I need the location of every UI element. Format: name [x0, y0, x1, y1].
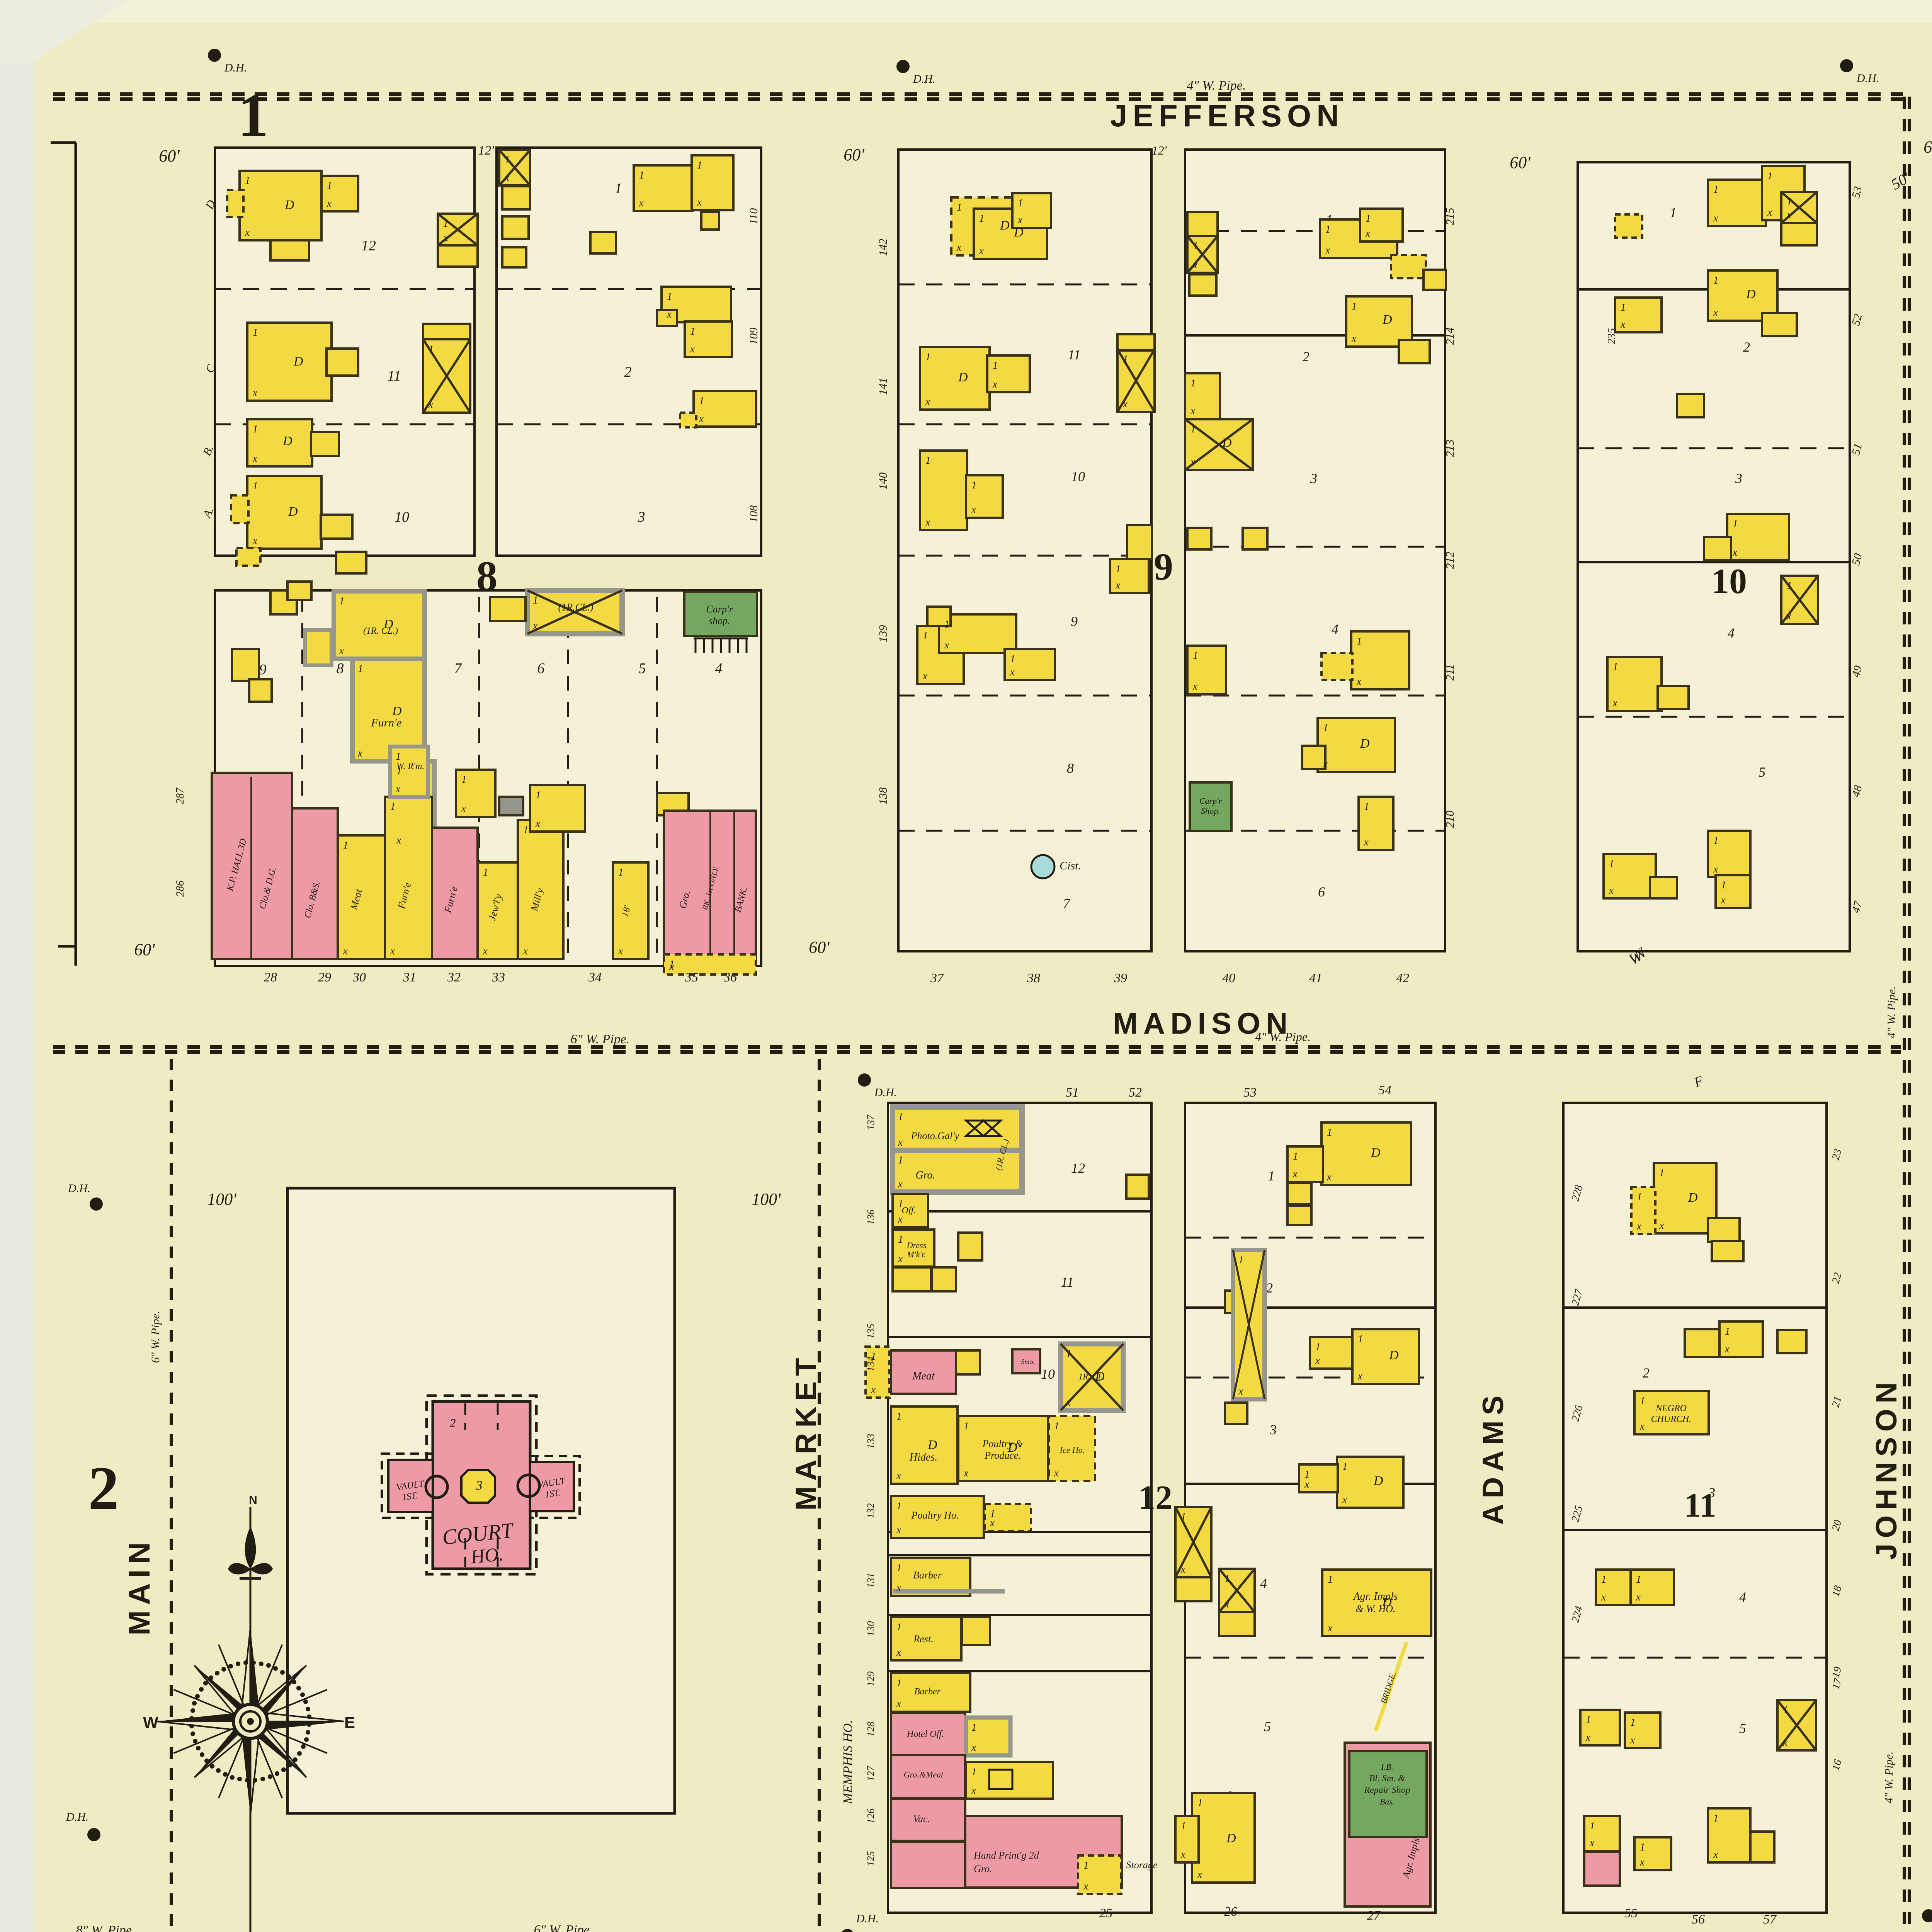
svg-text:12: 12 [361, 238, 376, 254]
svg-text:x: x [461, 803, 466, 815]
svg-text:D.H.: D.H. [68, 1182, 90, 1195]
svg-text:1: 1 [1083, 1859, 1089, 1871]
svg-text:x: x [697, 196, 702, 208]
svg-text:1: 1 [1181, 1511, 1186, 1522]
svg-text:4" W. Pipe.: 4" W. Pipe. [1883, 1752, 1895, 1804]
svg-text:3: 3 [638, 509, 645, 525]
svg-text:x: x [1786, 209, 1791, 221]
svg-text:D.H.: D.H. [224, 61, 247, 74]
svg-text:132: 132 [865, 1503, 876, 1519]
svg-text:9: 9 [259, 662, 267, 678]
svg-text:4: 4 [715, 660, 723, 677]
svg-text:D.H.: D.H. [1856, 72, 1879, 85]
svg-text:8: 8 [1067, 760, 1074, 776]
svg-text:1: 1 [1767, 170, 1773, 182]
svg-text:213: 213 [1444, 440, 1456, 457]
svg-text:11: 11 [1061, 1274, 1073, 1290]
svg-text:D: D [1746, 287, 1756, 301]
svg-text:286: 286 [174, 881, 186, 897]
svg-text:3: 3 [1310, 471, 1317, 486]
svg-text:1: 1 [1721, 879, 1726, 891]
svg-text:D: D [1360, 736, 1370, 751]
svg-text:1: 1 [618, 866, 624, 878]
svg-text:x: x [639, 197, 644, 209]
svg-text:38: 38 [1027, 971, 1040, 985]
svg-text:1: 1 [396, 750, 401, 762]
svg-text:1: 1 [896, 1410, 902, 1422]
svg-text:26: 26 [1224, 1905, 1237, 1919]
svg-text:D: D [927, 1438, 937, 1452]
svg-text:1: 1 [1010, 653, 1015, 665]
svg-text:1: 1 [667, 291, 672, 302]
svg-text:1: 1 [461, 774, 467, 785]
svg-text:x: x [1342, 1494, 1347, 1505]
svg-text:x: x [428, 399, 433, 410]
svg-text:MEMPHIS HO.: MEMPHIS HO. [841, 1720, 855, 1804]
svg-text:1: 1 [253, 327, 258, 338]
svg-text:10: 10 [1711, 561, 1747, 601]
svg-text:x: x [1010, 666, 1015, 678]
svg-text:8" W. Pipe.: 8" W. Pipe. [76, 1923, 135, 1932]
svg-text:JOHNSON: JOHNSON [1870, 1377, 1903, 1560]
svg-text:Rest.: Rest. [913, 1633, 933, 1645]
svg-text:x: x [1620, 318, 1625, 330]
svg-text:1: 1 [1342, 1461, 1348, 1472]
svg-text:1: 1 [1357, 635, 1362, 647]
svg-text:x: x [896, 1524, 901, 1536]
svg-text:1: 1 [1054, 1420, 1060, 1432]
svg-text:x: x [1351, 333, 1356, 344]
svg-text:141: 141 [877, 378, 889, 395]
svg-text:32: 32 [447, 970, 461, 985]
svg-text:110: 110 [747, 208, 760, 225]
svg-text:40: 40 [1222, 971, 1235, 985]
svg-text:1: 1 [1352, 300, 1357, 312]
svg-text:x: x [1180, 1563, 1185, 1575]
svg-text:51: 51 [1066, 1085, 1079, 1100]
svg-text:3: 3 [1735, 471, 1742, 486]
svg-text:D: D [958, 370, 968, 384]
svg-text:1: 1 [1190, 377, 1196, 389]
svg-text:M'k'r.: M'k'r. [906, 1250, 926, 1259]
svg-text:x: x [1192, 680, 1197, 692]
svg-text:D: D [282, 434, 293, 448]
svg-text:60': 60' [159, 146, 180, 165]
svg-text:3: 3 [476, 1478, 483, 1493]
svg-text:x: x [252, 387, 257, 398]
svg-text:x: x [1327, 1622, 1332, 1634]
svg-text:x: x [1315, 1355, 1320, 1366]
svg-text:6: 6 [537, 660, 545, 677]
svg-text:x: x [667, 308, 672, 320]
svg-text:1: 1 [639, 169, 645, 181]
svg-text:x: x [532, 620, 537, 631]
svg-text:D: D [383, 617, 393, 631]
svg-text:56: 56 [1692, 1912, 1705, 1927]
svg-text:x: x [343, 945, 348, 957]
svg-text:139: 139 [877, 625, 889, 643]
svg-text:25: 25 [1099, 1906, 1112, 1920]
svg-text:1: 1 [390, 801, 396, 812]
svg-text:Shop.: Shop. [1201, 806, 1220, 816]
svg-text:Photo.Gal'y: Photo.Gal'y [911, 1130, 959, 1141]
svg-text:x: x [1612, 697, 1617, 709]
svg-text:x: x [1639, 1420, 1645, 1432]
svg-text:1: 1 [699, 395, 704, 406]
svg-text:1: 1 [483, 866, 488, 878]
svg-text:1: 1 [896, 1621, 902, 1633]
svg-text:52: 52 [1129, 1085, 1142, 1100]
svg-text:x: x [483, 945, 488, 957]
svg-text:235: 235 [1606, 328, 1618, 344]
svg-text:1: 1 [964, 1420, 969, 1432]
svg-text:6" W. Pipe.: 6" W. Pipe. [534, 1923, 593, 1932]
svg-text:12': 12' [478, 143, 494, 158]
svg-text:Gro.&Meat: Gro.&Meat [904, 1770, 944, 1779]
svg-text:1: 1 [1670, 205, 1677, 220]
svg-text:35: 35 [685, 970, 698, 985]
svg-text:1: 1 [1018, 197, 1023, 209]
svg-text:1: 1 [1725, 1325, 1730, 1337]
svg-text:D.H.: D.H. [66, 1811, 88, 1823]
svg-text:1: 1 [697, 159, 702, 171]
svg-text:Bl. Sm. &: Bl. Sm. & [1369, 1774, 1405, 1784]
svg-text:1: 1 [536, 789, 541, 801]
svg-text:10: 10 [1041, 1366, 1055, 1382]
svg-text:41: 41 [1309, 971, 1322, 985]
svg-text:1: 1 [343, 839, 349, 851]
svg-text:33: 33 [492, 970, 505, 985]
svg-text:D: D [1000, 218, 1010, 233]
svg-text:1: 1 [1238, 1254, 1244, 1265]
svg-text:x: x [1782, 1736, 1787, 1748]
svg-text:I.B.: I.B. [1381, 1762, 1393, 1772]
svg-text:1: 1 [1193, 240, 1198, 252]
svg-text:D.H.: D.H. [913, 73, 935, 85]
svg-text:136: 136 [865, 1210, 876, 1225]
svg-text:1: 1 [523, 824, 529, 835]
svg-text:x: x [357, 747, 362, 759]
svg-text:JEFFERSON: JEFFERSON [1110, 99, 1344, 133]
svg-text:2: 2 [624, 364, 632, 380]
svg-text:1: 1 [1713, 1812, 1719, 1824]
svg-text:1: 1 [898, 1198, 903, 1209]
svg-text:1: 1 [971, 1766, 977, 1777]
svg-text:D: D [1371, 1146, 1381, 1160]
svg-text:42: 42 [1396, 971, 1409, 985]
svg-text:Off.: Off. [902, 1206, 916, 1216]
svg-text:10: 10 [395, 509, 409, 525]
svg-text:x: x [1609, 884, 1614, 896]
svg-text:37: 37 [930, 971, 944, 985]
svg-text:1: 1 [1586, 1714, 1591, 1725]
svg-text:7: 7 [1063, 896, 1071, 911]
svg-text:x: x [1639, 1856, 1645, 1868]
svg-text:4: 4 [1332, 621, 1338, 637]
svg-text:1: 1 [1636, 1573, 1641, 1585]
svg-text:12: 12 [1138, 1479, 1172, 1517]
svg-text:ADAMS: ADAMS [1477, 1390, 1510, 1525]
svg-text:1: 1 [1783, 1704, 1788, 1716]
svg-text:60': 60' [809, 938, 830, 957]
svg-text:2: 2 [1303, 349, 1310, 364]
svg-text:D.H.: D.H. [874, 1086, 897, 1099]
svg-text:x: x [1585, 1731, 1590, 1743]
svg-text:1: 1 [327, 180, 332, 191]
svg-text:5: 5 [1739, 1721, 1746, 1736]
svg-text:x: x [1192, 259, 1197, 270]
svg-text:5: 5 [639, 660, 646, 677]
svg-text:1: 1 [1659, 1167, 1665, 1179]
svg-text:x: x [1017, 214, 1022, 226]
svg-text:Bas.: Bas. [1380, 1797, 1395, 1806]
svg-text:108: 108 [747, 505, 760, 523]
svg-text:1: 1 [923, 630, 928, 641]
svg-text:1: 1 [1327, 1126, 1332, 1138]
svg-text:shop.: shop. [709, 615, 730, 626]
svg-text:1: 1 [896, 1500, 902, 1512]
svg-text:Vac.: Vac. [913, 1813, 930, 1825]
svg-text:7: 7 [454, 660, 463, 677]
svg-text:1: 1 [993, 359, 998, 371]
svg-text:Dress: Dress [906, 1240, 927, 1250]
svg-text:Carp'r: Carp'r [706, 604, 733, 615]
svg-text:x: x [690, 343, 695, 355]
svg-text:x: x [1364, 836, 1369, 848]
svg-text:129: 129 [865, 1672, 876, 1687]
svg-text:210: 210 [1444, 811, 1456, 828]
svg-text:57: 57 [1763, 1912, 1777, 1927]
svg-text:Cist.: Cist. [1060, 859, 1081, 872]
svg-text:1: 1 [1733, 518, 1738, 529]
svg-text:1: 1 [1225, 1573, 1230, 1584]
svg-text:x: x [339, 645, 344, 656]
svg-text:x: x [956, 241, 961, 253]
svg-text:138: 138 [877, 787, 889, 805]
svg-text:1: 1 [245, 175, 250, 186]
svg-text:1: 1 [238, 81, 269, 150]
svg-text:Hand Print'g 2d: Hand Print'g 2d [973, 1850, 1039, 1861]
svg-text:214: 214 [1444, 328, 1456, 345]
svg-text:1: 1 [1590, 1820, 1595, 1832]
svg-text:x: x [1190, 405, 1195, 417]
svg-text:140: 140 [877, 473, 889, 490]
svg-text:1: 1 [1325, 223, 1331, 235]
svg-text:x: x [1327, 1171, 1332, 1183]
svg-text:x: x [1357, 1370, 1362, 1382]
svg-text:x: x [971, 504, 976, 515]
svg-text:D: D [1382, 1595, 1392, 1609]
svg-text:x: x [669, 961, 674, 972]
svg-text:6: 6 [1318, 884, 1325, 900]
svg-text:1: 1 [615, 180, 622, 197]
svg-text:1: 1 [1601, 1573, 1607, 1585]
svg-text:x: x [535, 818, 540, 829]
svg-text:1: 1 [1315, 1341, 1321, 1352]
svg-text:D: D [1373, 1474, 1383, 1488]
svg-text:x: x [618, 945, 623, 957]
svg-text:128: 128 [865, 1722, 876, 1737]
svg-text:1: 1 [339, 595, 345, 607]
svg-text:1: 1 [358, 663, 363, 674]
svg-text:1: 1 [1609, 858, 1614, 869]
svg-text:2: 2 [1743, 339, 1750, 355]
svg-text:1: 1 [1613, 661, 1618, 672]
svg-text:x: x [963, 1467, 968, 1479]
svg-text:x: x [898, 1178, 903, 1190]
svg-text:E: E [344, 1713, 355, 1731]
svg-text:Hides.: Hides. [909, 1451, 937, 1463]
svg-text:D: D [1007, 1440, 1017, 1455]
svg-text:1: 1 [1787, 196, 1792, 207]
svg-text:60': 60' [134, 940, 155, 959]
svg-text:1: 1 [1637, 1191, 1642, 1202]
svg-text:Smo.: Smo. [1021, 1358, 1035, 1366]
svg-text:x: x [898, 1213, 903, 1225]
svg-text:5: 5 [1759, 764, 1765, 780]
svg-text:Gro.: Gro. [974, 1863, 992, 1874]
svg-text:1: 1 [871, 1350, 876, 1362]
svg-text:MAIN: MAIN [122, 1537, 156, 1635]
svg-text:x: x [944, 639, 949, 651]
svg-text:x: x [898, 1253, 903, 1264]
svg-text:x: x [1197, 1869, 1202, 1880]
svg-text:W: W [143, 1713, 158, 1731]
svg-text:10: 10 [1071, 469, 1085, 484]
svg-text:x: x [1122, 398, 1128, 410]
svg-text:1: 1 [1328, 1573, 1333, 1585]
svg-text:N: N [249, 1494, 257, 1507]
svg-text:x: x [1224, 1598, 1229, 1610]
svg-text:Repair Shop: Repair Shop [1364, 1785, 1410, 1795]
svg-text:4" W. Pipe.: 4" W. Pipe. [1187, 78, 1246, 93]
svg-text:Gro.: Gro. [915, 1169, 935, 1181]
svg-text:x: x [922, 670, 927, 682]
svg-text:x: x [1713, 307, 1718, 318]
svg-text:1: 1 [898, 1233, 903, 1245]
svg-text:212: 212 [1444, 552, 1456, 569]
svg-text:x: x [1589, 1837, 1594, 1849]
svg-text:x: x [1325, 244, 1330, 256]
svg-text:D: D [1226, 1831, 1236, 1845]
svg-text:1: 1 [1190, 423, 1196, 435]
svg-text:54: 54 [1378, 1083, 1391, 1097]
svg-text:215: 215 [1444, 208, 1456, 225]
svg-text:x: x [992, 378, 997, 390]
svg-text:x: x [699, 413, 704, 424]
svg-text:1: 1 [253, 423, 258, 435]
svg-text:30: 30 [352, 970, 366, 985]
svg-text:1: 1 [396, 765, 402, 777]
svg-text:1: 1 [898, 1111, 903, 1122]
svg-text:D.H.: D.H. [856, 1912, 879, 1925]
svg-text:x: x [871, 1384, 876, 1395]
svg-text:x: x [1180, 1849, 1185, 1860]
svg-text:1: 1 [1358, 1333, 1363, 1345]
svg-text:x: x [1713, 212, 1718, 224]
svg-text:29: 29 [318, 970, 331, 985]
svg-text:1: 1 [925, 454, 931, 466]
svg-text:x: x [896, 1698, 901, 1709]
svg-text:x: x [1721, 894, 1726, 906]
svg-text:137: 137 [865, 1115, 876, 1130]
svg-text:x: x [1238, 1385, 1243, 1397]
svg-text:x: x [245, 226, 250, 238]
svg-text:4: 4 [1260, 1576, 1267, 1591]
svg-text:142: 142 [877, 239, 889, 256]
svg-text:CHURCH.: CHURCH. [1651, 1414, 1692, 1424]
svg-text:1: 1 [971, 479, 977, 491]
svg-text:4" W. Pipe.: 4" W. Pipe. [1255, 1030, 1311, 1044]
svg-text:109: 109 [747, 328, 760, 345]
svg-text:5: 5 [1264, 1719, 1271, 1734]
svg-text:D: D [293, 354, 303, 369]
svg-text:1: 1 [1197, 1797, 1203, 1808]
svg-text:1: 1 [1787, 580, 1792, 591]
svg-text:60': 60' [1923, 138, 1932, 156]
svg-text:Hotel Off.: Hotel Off. [906, 1729, 944, 1739]
svg-text:D: D [1222, 436, 1232, 450]
svg-text:Carp'r: Carp'r [1199, 796, 1222, 806]
svg-text:1: 1 [1364, 801, 1369, 812]
svg-text:4: 4 [1728, 625, 1735, 641]
svg-text:x: x [1323, 758, 1328, 770]
svg-text:x: x [504, 172, 509, 183]
svg-text:1: 1 [1713, 184, 1719, 195]
svg-text:11: 11 [387, 368, 401, 384]
svg-text:9: 9 [1154, 545, 1173, 588]
svg-text:Barber: Barber [914, 1687, 941, 1697]
svg-text:x: x [896, 1582, 901, 1594]
svg-text:1: 1 [253, 480, 258, 492]
svg-text:2: 2 [450, 1417, 456, 1429]
svg-text:1: 1 [429, 343, 434, 355]
svg-text:133: 133 [865, 1434, 876, 1449]
svg-text:x: x [252, 452, 257, 464]
svg-text:1: 1 [1293, 1150, 1298, 1162]
svg-text:x: x [395, 783, 400, 794]
svg-text:100': 100' [207, 1190, 237, 1209]
svg-text:D: D [288, 505, 298, 519]
svg-text:x: x [1636, 1591, 1641, 1603]
svg-text:Poultry Ho.: Poultry Ho. [911, 1510, 959, 1521]
svg-text:39: 39 [1114, 971, 1127, 985]
svg-text:12': 12' [1152, 143, 1167, 157]
svg-text:D: D [284, 198, 294, 212]
svg-text:6" W. Pipe.: 6" W. Pipe. [571, 1032, 630, 1046]
svg-text:x: x [1054, 1467, 1059, 1479]
svg-text:1: 1 [896, 1677, 902, 1689]
svg-text:x: x [979, 245, 984, 257]
svg-text:x: x [390, 945, 395, 957]
svg-text:9: 9 [1071, 614, 1078, 629]
svg-text:NEGRO: NEGRO [1655, 1403, 1687, 1413]
svg-text:287: 287 [174, 787, 186, 804]
svg-text:x: x [1365, 228, 1370, 239]
svg-text:(1R.CL.): (1R.CL.) [558, 602, 594, 613]
svg-text:4: 4 [1739, 1589, 1746, 1605]
svg-text:1: 1 [925, 351, 931, 362]
svg-text:135: 135 [865, 1324, 876, 1339]
svg-text:28: 28 [264, 970, 277, 985]
svg-text:x: x [252, 535, 257, 546]
svg-text:x: x [925, 396, 930, 407]
svg-text:60': 60' [844, 145, 865, 164]
svg-text:11: 11 [1684, 1487, 1716, 1524]
svg-text:D: D [1382, 313, 1392, 327]
svg-text:x: x [1725, 1343, 1730, 1355]
svg-text:x: x [327, 197, 332, 209]
